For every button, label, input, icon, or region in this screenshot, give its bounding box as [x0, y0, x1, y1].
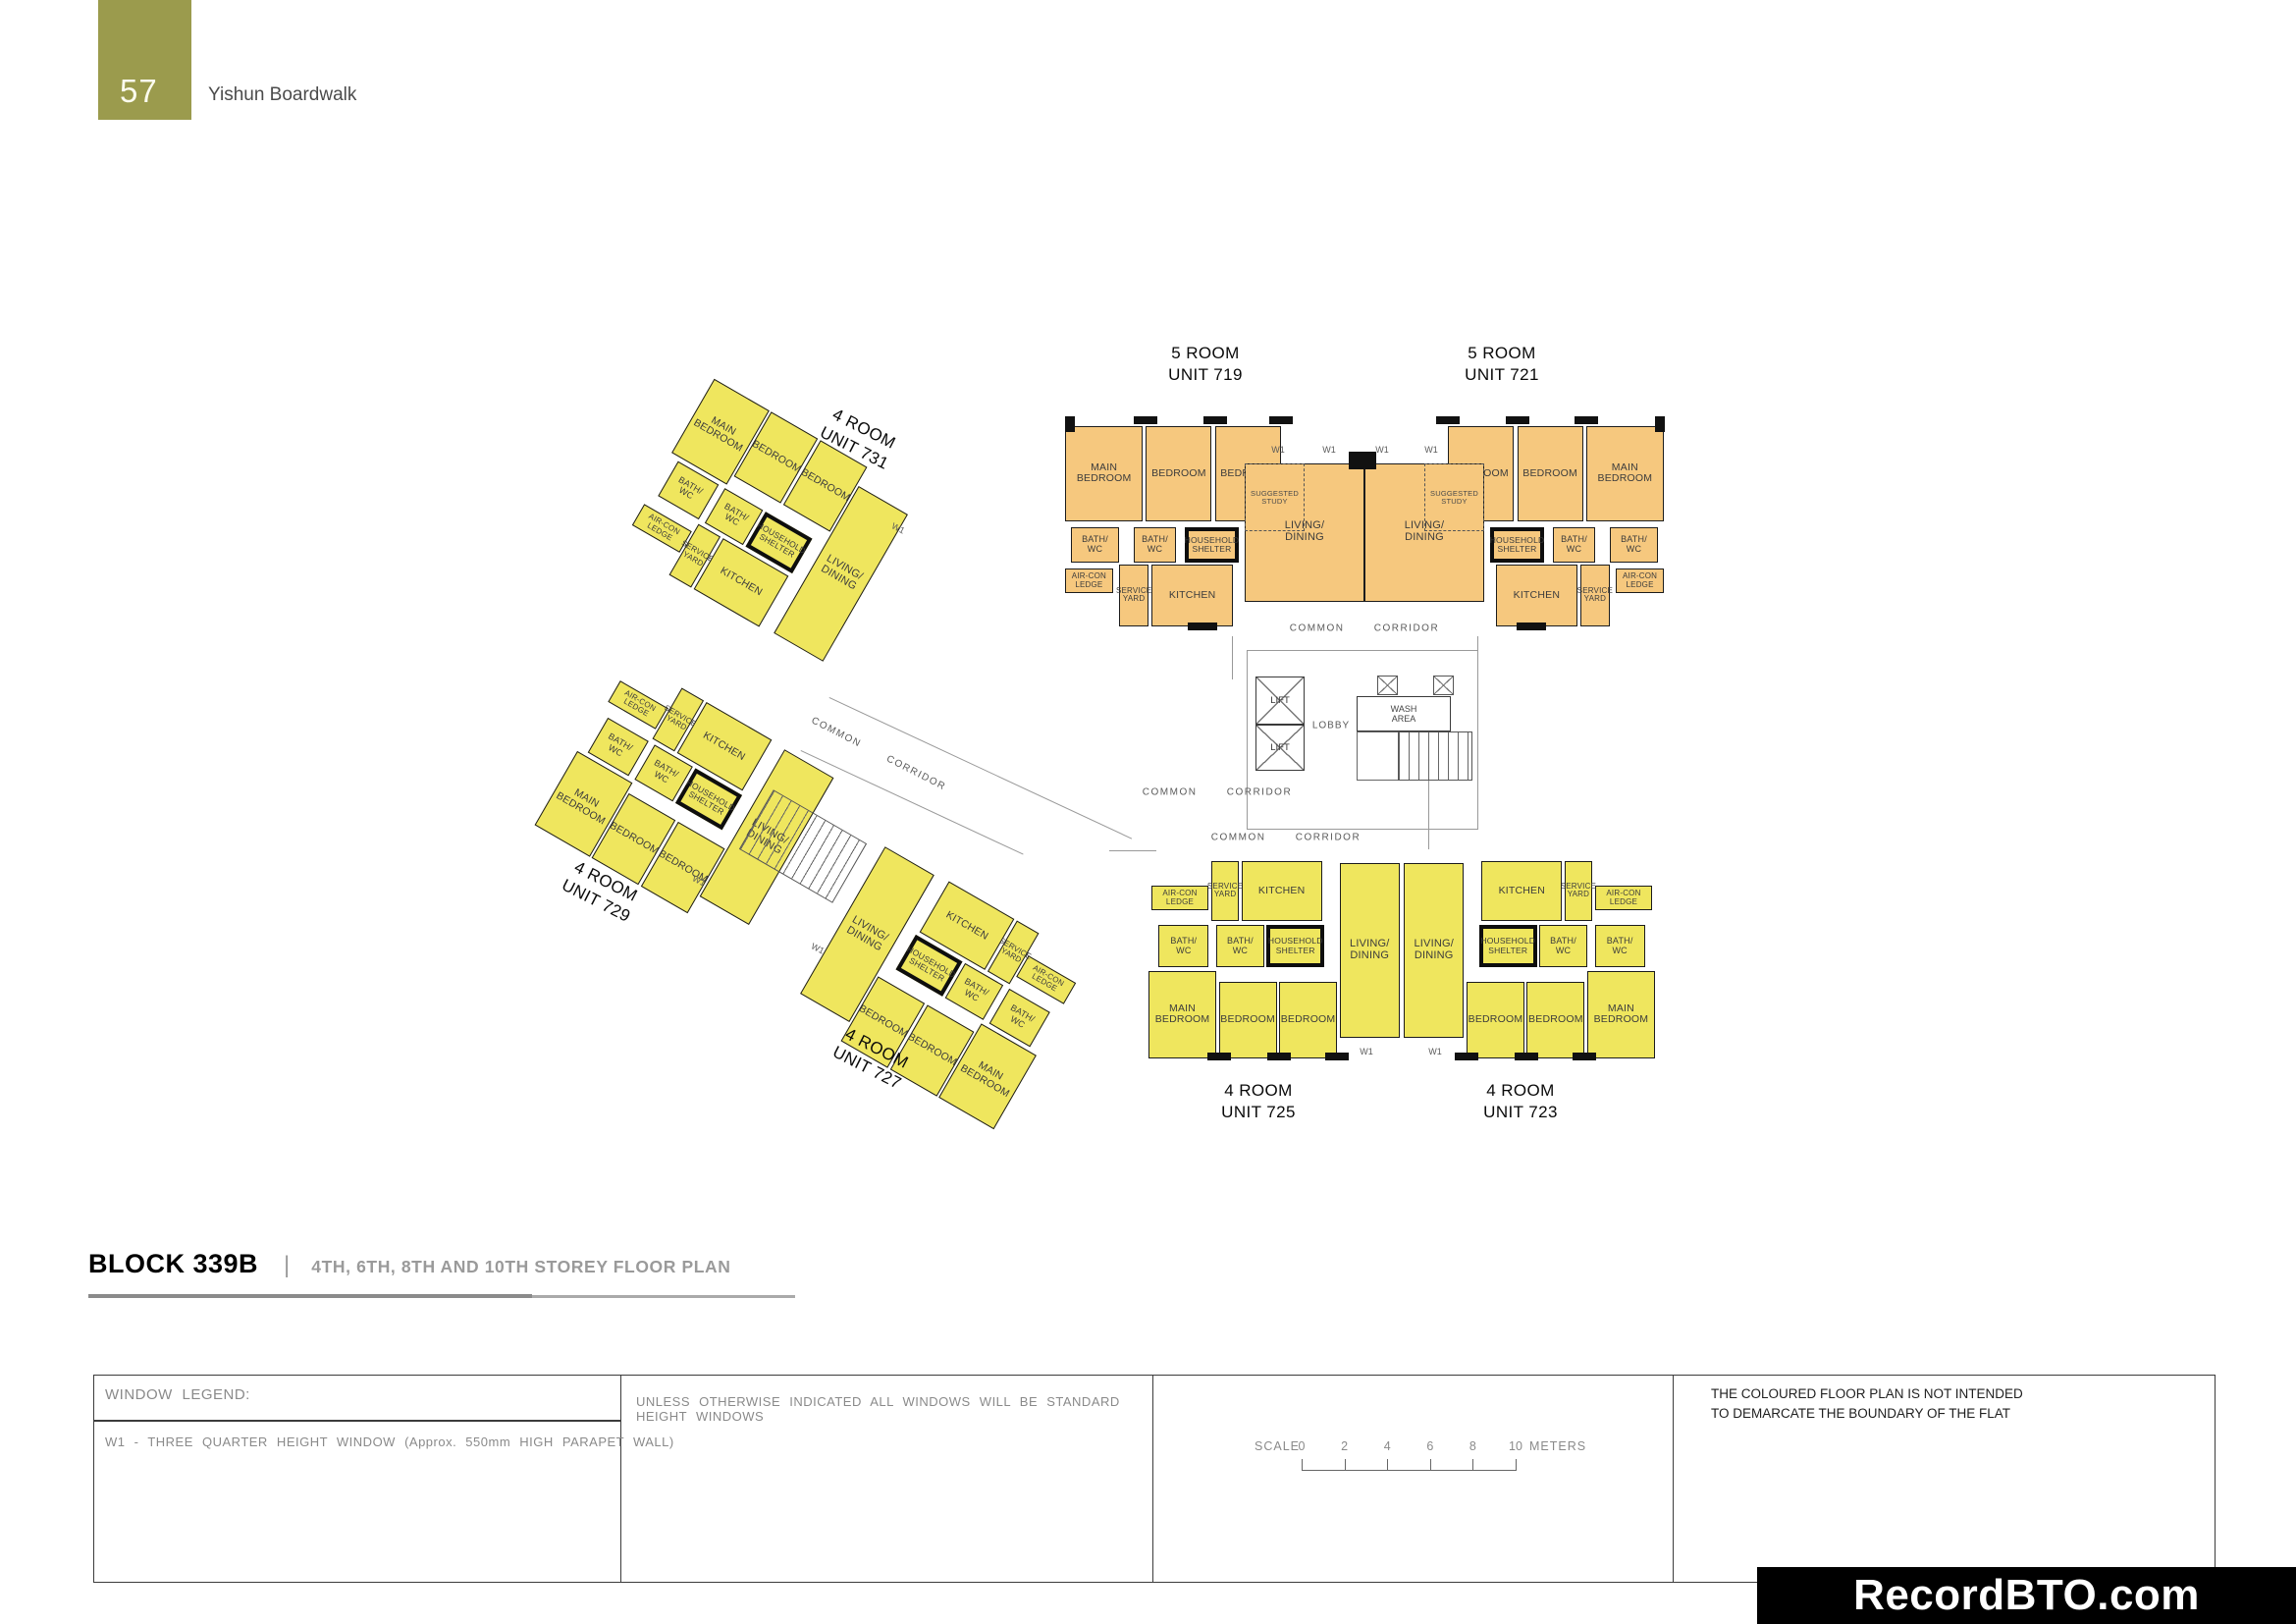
unit-719: MAIN BEDROOMBEDROOMBEDROOMBATH/ WCBATH/ … [1065, 422, 1364, 628]
wall-segment [1349, 452, 1376, 469]
room-household-shelter: HOUSEHOLD SHELTER [1479, 925, 1537, 966]
wall-segment [1575, 416, 1598, 424]
room-service-yard: SERVICE YARD [1119, 565, 1149, 626]
wall-segment [1267, 1053, 1291, 1060]
unit-723: AIR-CON LEDGESERVICE YARDKITCHENBATH/ WC… [1404, 850, 1655, 1058]
room-aircon-ledge: AIR-CON LEDGE [1151, 886, 1209, 910]
scale-baseline [1302, 1470, 1516, 1471]
block-title: BLOCK 339B | 4TH, 6TH, 8TH AND 10TH STOR… [88, 1249, 730, 1279]
lift-1: LIFT [1255, 677, 1305, 725]
scale-tick-value: 8 [1469, 1439, 1476, 1453]
room-kitchen: KITCHEN [1496, 565, 1576, 626]
room-bath-wc: BATH/ WC [1134, 527, 1176, 563]
room-aircon-ledge: AIR-CON LEDGE [1595, 886, 1653, 910]
scale-tick-value: 0 [1299, 1439, 1306, 1453]
wall-segment [1065, 416, 1075, 432]
unit-label-719: 5 ROOM UNIT 719 [1168, 343, 1243, 386]
room-bath-wc: BATH/ WC [1539, 925, 1587, 966]
unit-725: AIR-CON LEDGESERVICE YARDKITCHENBATH/ WC… [1148, 850, 1400, 1058]
scale-label: SCALE [1255, 1439, 1300, 1453]
window-legend-title: WINDOW LEGEND: [105, 1386, 250, 1403]
legend-header-rule [93, 1420, 621, 1422]
room-aircon-ledge: AIR-CON LEDGE [1616, 568, 1664, 593]
block-name: BLOCK 339B [88, 1249, 258, 1279]
corridor-line [829, 697, 1133, 839]
room-household-shelter: HOUSEHOLD SHELTER [1185, 527, 1239, 563]
room-suggested-study: SUGGESTED STUDY [1424, 463, 1484, 531]
wall-segment [1455, 1053, 1478, 1060]
wall-segment [1269, 416, 1293, 424]
watermark-banner: RecordBTO.com [1757, 1567, 2296, 1624]
room-aircon-ledge: AIR-CON LEDGE [1065, 568, 1113, 593]
room-service-yard: SERVICE YARD [1580, 565, 1611, 626]
w1-window-marker: W1 [1375, 445, 1389, 455]
wall-segment [1517, 623, 1546, 630]
w1-window-marker: W1 [1360, 1047, 1373, 1056]
floor-plan-page: 57 Yishun Boardwalk MAIN BEDROOMBEDROOMB… [0, 0, 2296, 1624]
room-bedroom: BEDROOM [1219, 982, 1277, 1058]
wall-segment [1506, 416, 1529, 424]
title-divider: | [284, 1252, 290, 1279]
corridor-line [1232, 636, 1233, 679]
scale-tick-value: 2 [1341, 1439, 1348, 1453]
room-service-yard: SERVICE YARD [1565, 861, 1592, 921]
common-corridor-label: COMMON CORRIDOR [1143, 787, 1292, 798]
room-kitchen: KITCHEN [1481, 861, 1562, 921]
wall-segment [1188, 623, 1217, 630]
room-bath-wc: BATH/ WC [1216, 925, 1264, 966]
room-living-dining: LIVING/ DINING [1404, 863, 1464, 1038]
room-bedroom: BEDROOM [1279, 982, 1337, 1058]
wall-segment [1134, 416, 1157, 424]
window-legend-w1-note: W1 - THREE QUARTER HEIGHT WINDOW (Approx… [105, 1435, 674, 1449]
room-kitchen: KITCHEN [1151, 565, 1232, 626]
room-household-shelter: HOUSEHOLD SHELTER [1490, 527, 1544, 563]
room-aircon-ledge: AIR-CON LEDGE [609, 680, 667, 729]
room-kitchen: KITCHEN [1242, 861, 1322, 921]
wash-area: WASH AREA [1357, 696, 1451, 731]
scale-unit: METERS [1529, 1439, 1586, 1453]
room-bath-wc: BATH/ WC [1071, 527, 1119, 563]
legend-cell-window [93, 1375, 621, 1583]
wall-segment [1325, 1053, 1349, 1060]
room-bedroom: BEDROOM [1146, 426, 1211, 521]
room-main-bedroom: MAIN BEDROOM [1587, 971, 1655, 1058]
scale-tick-mark [1516, 1459, 1517, 1471]
lobby-label: LOBBY [1312, 721, 1350, 731]
wall-segment [1203, 416, 1227, 424]
wall-segment [1515, 1053, 1538, 1060]
unit-label-721: 5 ROOM UNIT 721 [1465, 343, 1539, 386]
title-underline-light [532, 1295, 795, 1298]
room-bath-wc: BATH/ WC [1158, 925, 1208, 966]
scale-tick-value: 4 [1384, 1439, 1391, 1453]
room-suggested-study: SUGGESTED STUDY [1245, 463, 1305, 531]
wall-segment [1655, 416, 1665, 432]
wall-segment [1573, 1053, 1596, 1060]
room-bath-wc: BATH/ WC [1595, 925, 1645, 966]
room-bedroom: BEDROOM [1526, 982, 1584, 1058]
w1-window-marker: W1 [1428, 1047, 1442, 1056]
room-main-bedroom: MAIN BEDROOM [1148, 971, 1216, 1058]
room-main-bedroom: MAIN BEDROOM [1065, 426, 1143, 521]
unit-721: MAIN BEDROOMBEDROOMBEDROOMBATH/ WCBATH/ … [1364, 422, 1664, 628]
room-main-bedroom: MAIN BEDROOM [1586, 426, 1664, 521]
w1-window-marker: W1 [1424, 445, 1438, 455]
room-bath-wc: BATH/ WC [1610, 527, 1658, 563]
title-underline-dark [88, 1294, 532, 1298]
room-household-shelter: HOUSEHOLD SHELTER [1266, 925, 1324, 966]
unit-label-723: 4 ROOM UNIT 723 [1483, 1080, 1558, 1123]
wall-segment [1436, 416, 1460, 424]
windows-note: UNLESS OTHERWISE INDICATED ALL WINDOWS W… [636, 1394, 1147, 1424]
scale-tick-value: 10 [1509, 1439, 1522, 1453]
room-service-yard: SERVICE YARD [1211, 861, 1239, 921]
legend-cell-scale [1153, 1375, 1674, 1583]
scale-bar: SCALE0246810METERS [1247, 1435, 1600, 1477]
w1-window-marker: W1 [1322, 445, 1336, 455]
coloured-plan-disclaimer: THE COLOURED FLOOR PLAN IS NOT INTENDED … [1711, 1384, 2023, 1423]
vent-shaft [1433, 676, 1454, 695]
lift-2: LIFT [1255, 725, 1305, 771]
wall-segment [1207, 1053, 1231, 1060]
room-living-dining: LIVING/ DINING [1340, 863, 1400, 1038]
storey-subtitle: 4TH, 6TH, 8TH AND 10TH STOREY FLOOR PLAN [311, 1257, 730, 1277]
room-bedroom: BEDROOM [1467, 982, 1524, 1058]
room-bedroom: BEDROOM [1518, 426, 1583, 521]
w1-window-marker: W1 [1271, 445, 1285, 455]
room-bath-wc: BATH/ WC [1553, 527, 1595, 563]
unit-label-725: 4 ROOM UNIT 725 [1221, 1080, 1296, 1123]
common-corridor-label: COMMON CORRIDOR [1290, 623, 1439, 634]
vent-shaft [1377, 676, 1398, 695]
core-staircase [1398, 731, 1472, 781]
common-corridor-label: COMMON CORRIDOR [1211, 833, 1361, 843]
scale-tick-value: 6 [1426, 1439, 1433, 1453]
